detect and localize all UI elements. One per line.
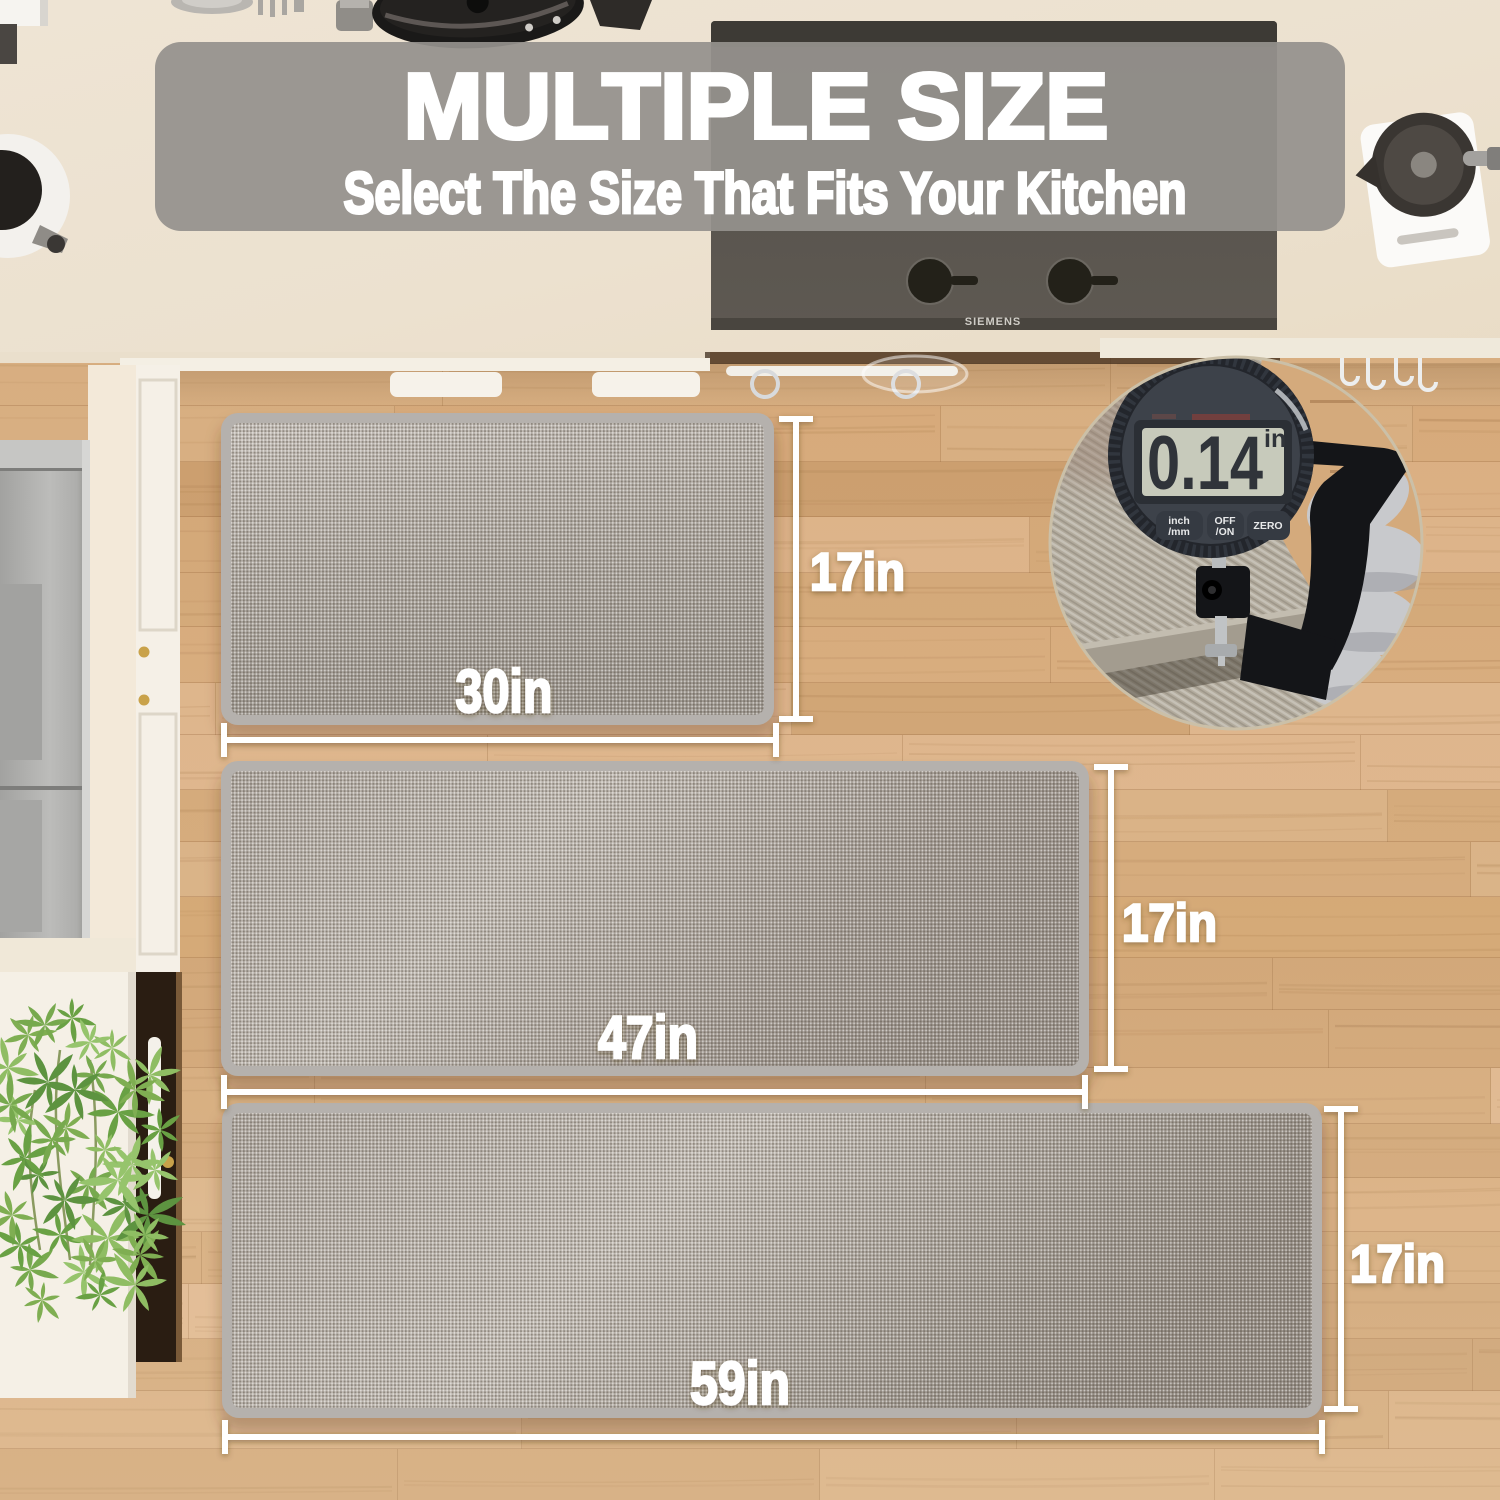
svg-text:17in: 17in: [1122, 894, 1217, 953]
svg-text:47in: 47in: [598, 1004, 698, 1071]
svg-text:in: in: [1264, 425, 1286, 453]
svg-text:59in: 59in: [690, 1350, 790, 1417]
svg-text:Select The Size That Fits Your: Select The Size That Fits Your Kitchen: [344, 161, 1187, 226]
svg-text:30in: 30in: [456, 658, 553, 725]
svg-text:/mm: /mm: [1168, 526, 1190, 538]
svg-text:MULTIPLE SIZE: MULTIPLE SIZE: [404, 54, 1109, 158]
svg-text:/ON: /ON: [1216, 526, 1235, 538]
svg-text:17in: 17in: [1350, 1235, 1445, 1294]
svg-text:17in: 17in: [810, 543, 905, 602]
svg-text:SIEMENS: SIEMENS: [965, 316, 1022, 328]
svg-text:0.14: 0.14: [1147, 421, 1263, 506]
svg-text:ZERO: ZERO: [1253, 520, 1282, 532]
